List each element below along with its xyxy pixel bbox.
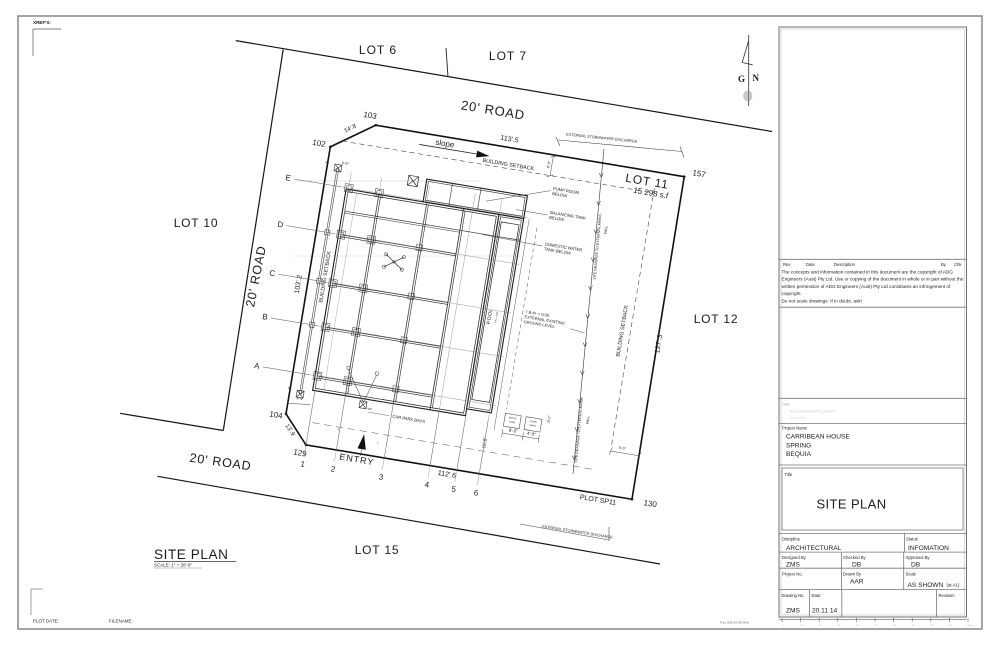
svg-text:Rev: Rev — [783, 262, 791, 267]
svg-text:LOT 7: LOT 7 — [489, 49, 527, 63]
svg-text:DB: DB — [852, 562, 862, 569]
svg-text:PC: PC — [325, 160, 329, 165]
svg-text:written permission of ADG Engi: written permission of ADG Engineers (Aus… — [782, 284, 952, 289]
svg-text:mm: mm — [971, 625, 975, 627]
svg-text:Status: Status — [906, 537, 918, 542]
svg-text:Checked By: Checked By — [843, 555, 866, 560]
svg-text:Description: Description — [834, 262, 856, 267]
svg-text:Project No.: Project No. — [782, 572, 803, 577]
svg-text:Engineers (Aust) Pty Ltd. Use: Engineers (Aust) Pty Ltd. Use or copying… — [782, 277, 964, 282]
svg-text:Approved By: Approved By — [906, 555, 931, 560]
svg-text:20.11 14: 20.11 14 — [812, 608, 838, 615]
svg-text:80: 80 — [931, 625, 933, 627]
svg-text:Designed By: Designed By — [782, 555, 807, 560]
svg-text:SCALE: 1" = 20'-0": SCALE: 1" = 20'-0" — [154, 563, 192, 568]
svg-text:Drawn By: Drawn By — [843, 572, 862, 577]
svg-text:Date:: Date: — [812, 593, 822, 598]
svg-text:20: 20 — [819, 625, 821, 627]
svg-text:100: 100 — [967, 625, 970, 627]
svg-text:LOT 10: LOT 10 — [174, 216, 219, 230]
svg-text:DB: DB — [911, 562, 921, 569]
svg-text:LOT 15: LOT 15 — [355, 543, 400, 557]
svg-text:LOT 6: LOT 6 — [359, 43, 397, 57]
svg-text:PC: PC — [287, 386, 291, 391]
svg-text:G: G — [738, 74, 745, 84]
svg-text:40: 40 — [856, 625, 858, 627]
svg-text:FALL: FALL — [604, 226, 609, 235]
svg-text:Chk: Chk — [954, 262, 962, 267]
svg-text:Date: Date — [806, 262, 816, 267]
svg-text:AAR: AAR — [850, 579, 864, 586]
svg-text:CARRIBEAN HOUSE: CARRIBEAN HOUSE — [786, 434, 850, 441]
svg-text:ZMS: ZMS — [786, 608, 801, 615]
svg-text:PLOT DATE:: PLOT DATE: — [33, 619, 59, 624]
svg-text:AS SHOWN: AS SHOWN — [908, 582, 944, 589]
svg-text:SITE PLAN: SITE PLAN — [154, 547, 228, 562]
svg-text:Project Name: Project Name — [782, 426, 808, 431]
svg-text:Discipline: Discipline — [782, 537, 801, 542]
svg-text:MH: MH — [367, 407, 372, 412]
svg-text:Scale: Scale — [906, 572, 917, 577]
svg-text:30: 30 — [838, 625, 840, 627]
svg-text:FILENAME:: FILENAME: — [109, 619, 133, 624]
svg-text:60: 60 — [894, 625, 896, 627]
svg-text:Title: Title — [785, 472, 793, 477]
svg-text:PTY LTD: PTY LTD — [790, 417, 806, 421]
svg-text:FALL: FALL — [586, 416, 591, 425]
svg-text:Drawing No.: Drawing No. — [782, 593, 805, 598]
svg-text:90: 90 — [949, 625, 951, 627]
svg-text:Do not scale drawings. If in d: Do not scale drawings. If in doubt, ask! — [782, 298, 863, 303]
svg-text:0: 0 — [782, 625, 783, 627]
svg-text:ADG ENGINEERS (AUST): ADG ENGINEERS (AUST) — [790, 410, 836, 414]
svg-text:(at A1): (at A1) — [947, 583, 960, 588]
svg-text:BEQUIA: BEQUIA — [786, 451, 812, 458]
svg-text:The concepts and information c: The concepts and information contained i… — [782, 270, 954, 275]
svg-text:LOT 12: LOT 12 — [694, 312, 739, 326]
svg-text:FULL SIZE ON ORIGINAL: FULL SIZE ON ORIGINAL — [720, 622, 750, 625]
svg-text:SITE PLAN: SITE PLAN — [816, 497, 886, 512]
svg-text:ZMS: ZMS — [786, 562, 801, 569]
svg-text:ARCHITECTURAL: ARCHITECTURAL — [786, 545, 842, 552]
svg-text:50: 50 — [875, 625, 877, 627]
svg-text:INFOMATION: INFOMATION — [908, 545, 949, 552]
svg-text:SPRING: SPRING — [786, 443, 811, 450]
svg-text:70: 70 — [912, 625, 914, 627]
svg-text:Client: Client — [782, 403, 790, 407]
svg-text:10: 10 — [801, 625, 803, 627]
svg-text:Revision: Revision — [939, 593, 956, 598]
svg-text:N: N — [753, 73, 760, 83]
svg-text:XREF'S:: XREF'S: — [33, 20, 51, 25]
svg-text:copyright.: copyright. — [782, 291, 802, 296]
